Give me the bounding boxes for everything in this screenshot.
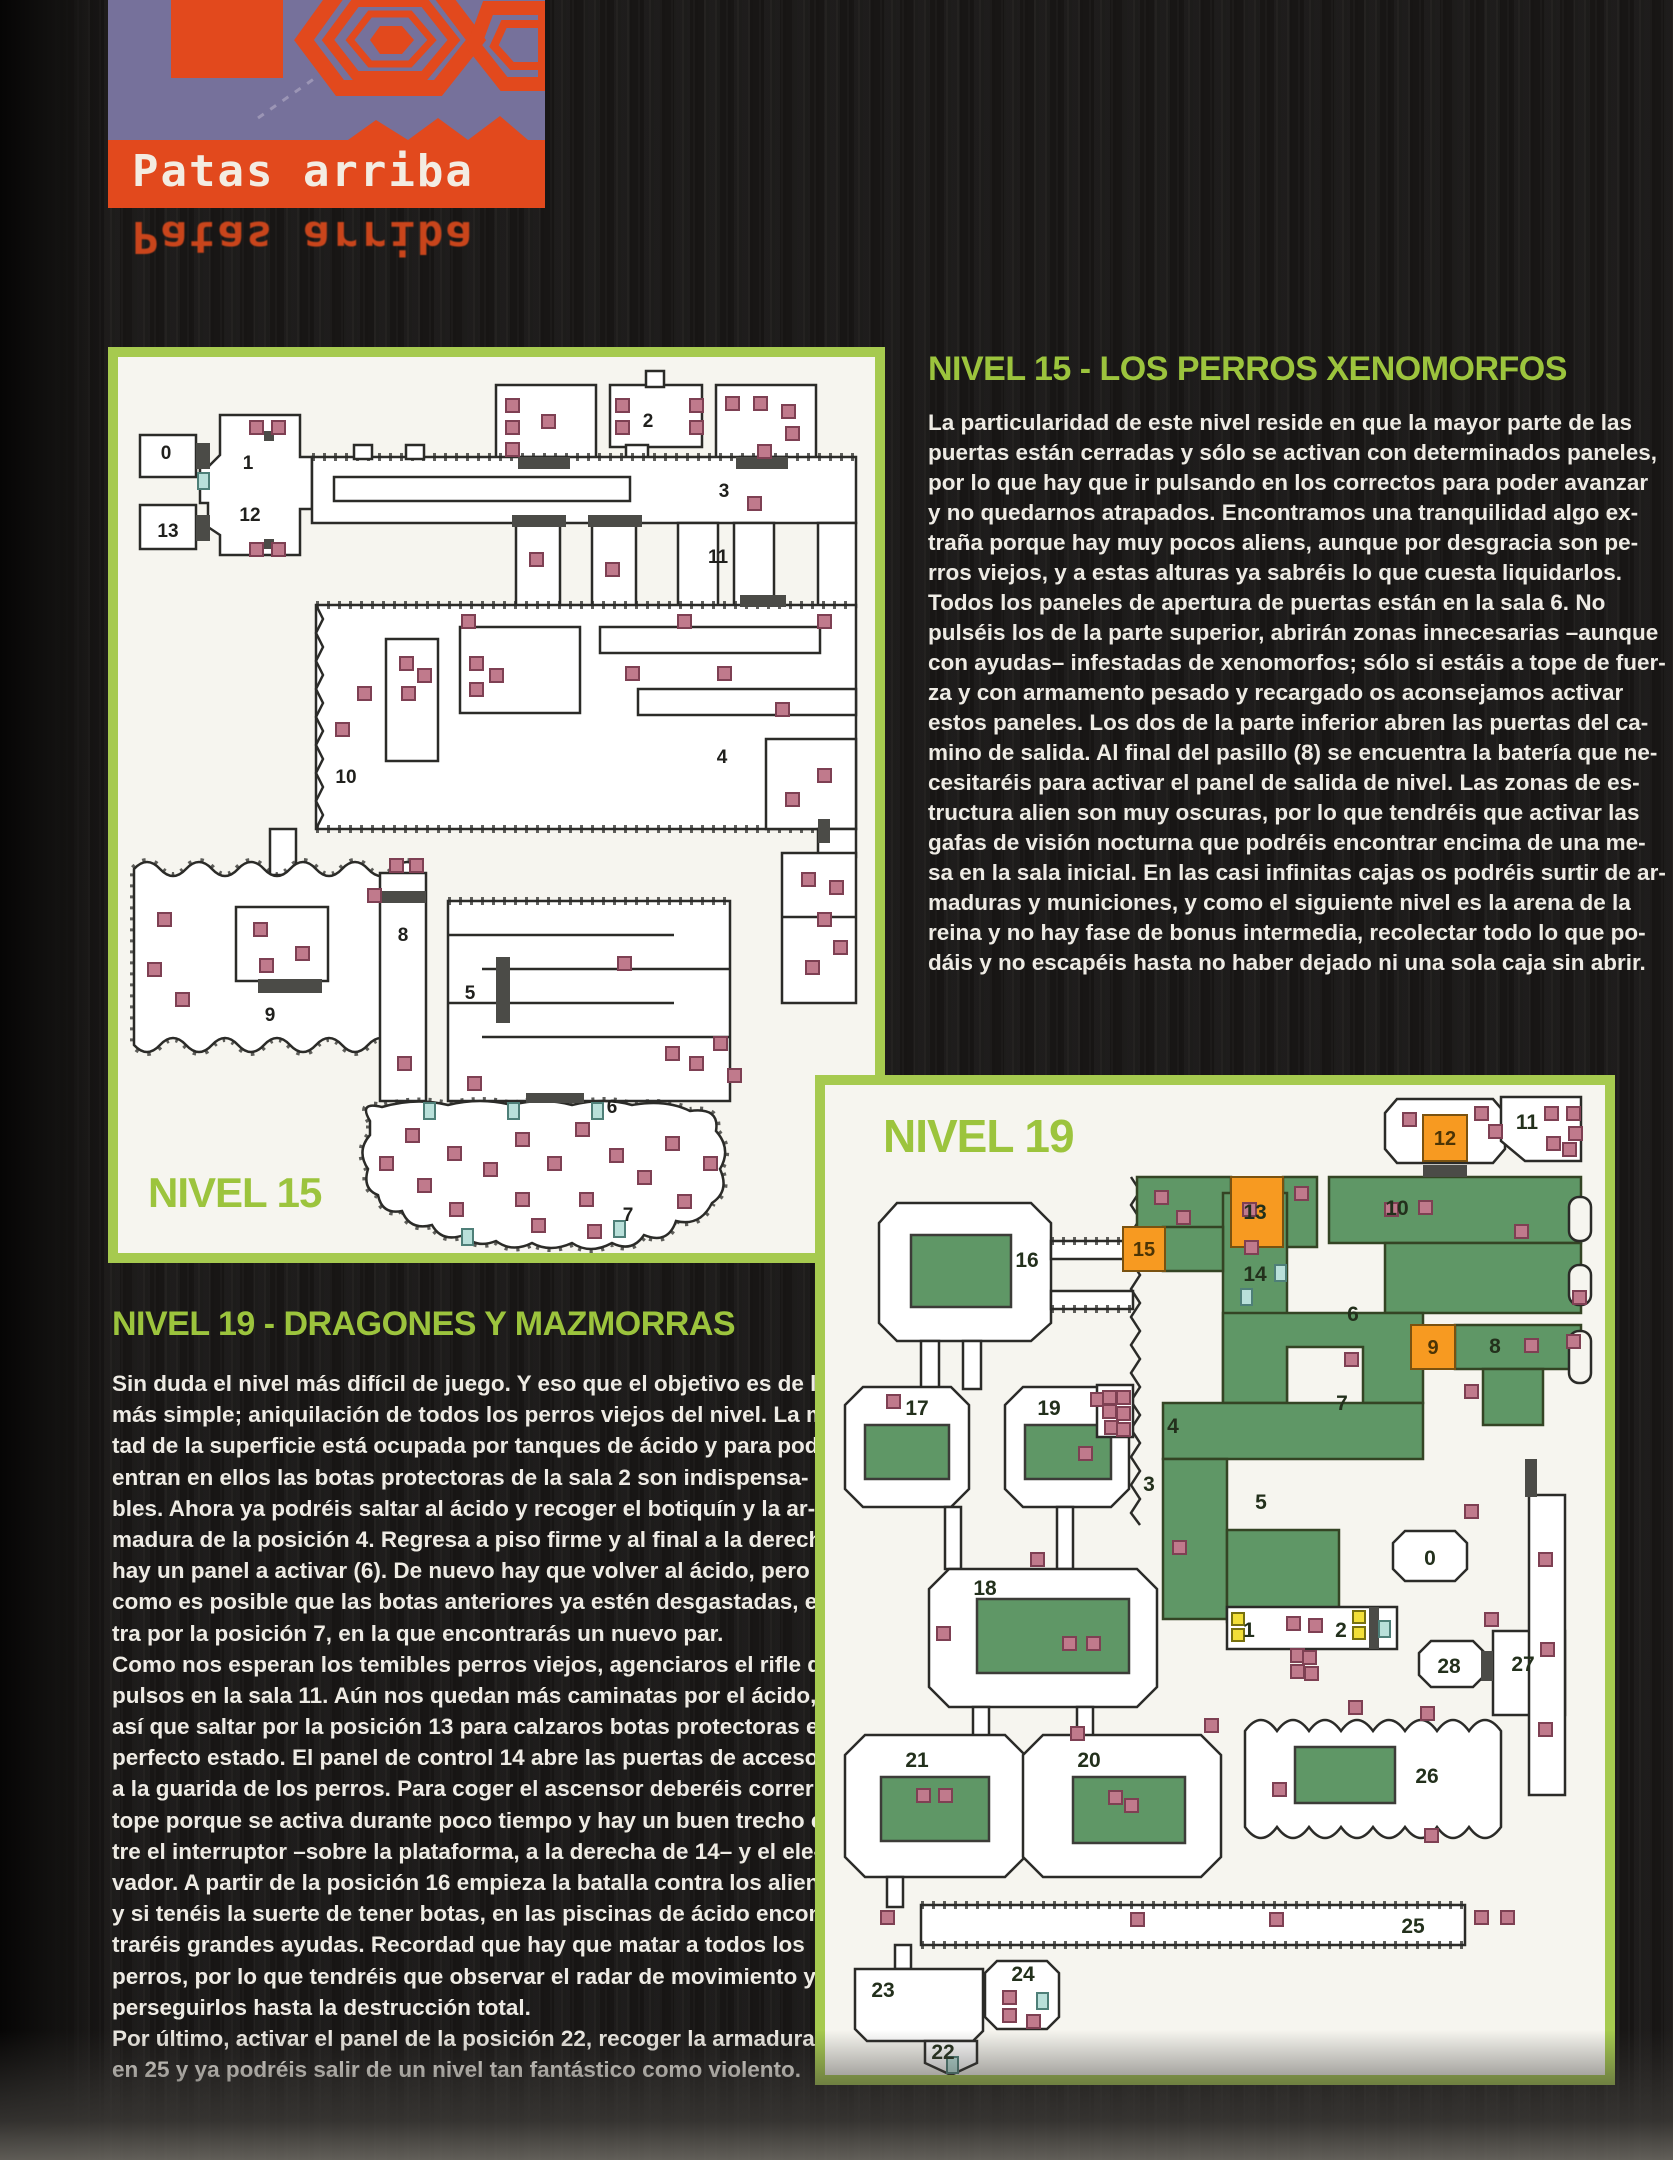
item-crate-icon bbox=[1501, 1911, 1514, 1924]
item-crate-icon bbox=[516, 1133, 529, 1146]
room-number: 16 bbox=[1015, 1249, 1038, 1272]
text-line: sa en la sala inicial. En las casi infin… bbox=[928, 858, 1602, 888]
item-crate-icon bbox=[776, 703, 789, 716]
text-line: tre el interruptor –sobre la plataforma,… bbox=[112, 1836, 802, 1867]
item-crate-icon bbox=[786, 793, 799, 806]
item-crate-icon bbox=[1177, 1211, 1190, 1224]
room-number: 3 bbox=[719, 481, 730, 502]
item-crate-icon bbox=[1270, 1913, 1283, 1926]
item-crate-icon bbox=[678, 615, 691, 628]
item-crate-icon bbox=[462, 615, 475, 628]
item-crate-icon bbox=[1117, 1407, 1130, 1420]
panel-number: 12 bbox=[1434, 1128, 1456, 1150]
text-line: así que saltar por la posición 13 para c… bbox=[112, 1711, 802, 1742]
item-crate-icon bbox=[296, 947, 309, 960]
text-line: mino de salida. Al final del pasillo (8)… bbox=[928, 738, 1602, 768]
item-crate-icon bbox=[1103, 1391, 1116, 1404]
item-crate-icon bbox=[1475, 1107, 1488, 1120]
door-marker bbox=[518, 457, 570, 469]
item-crate-icon bbox=[448, 1147, 461, 1160]
item-crate-icon bbox=[786, 427, 799, 440]
item-crate-icon bbox=[1545, 1107, 1558, 1120]
item-crate-icon bbox=[1421, 1707, 1434, 1720]
room-number: 26 bbox=[1415, 1765, 1438, 1788]
text-line: más simple; aniquilación de todos los pe… bbox=[112, 1399, 802, 1430]
door-marker bbox=[740, 595, 786, 607]
item-crate-icon bbox=[818, 769, 831, 782]
room-number: 8 bbox=[398, 925, 409, 946]
item-crate-icon bbox=[532, 1219, 545, 1232]
text-line: perfecto estado. El panel de control 14 … bbox=[112, 1742, 802, 1773]
item-crate-icon bbox=[1273, 1783, 1286, 1796]
room-number: 2 bbox=[643, 411, 654, 432]
item-crate-icon bbox=[402, 687, 415, 700]
door-marker bbox=[588, 515, 642, 527]
map19-svg: 15129 1617191821202324222501228272610131… bbox=[825, 1085, 1605, 2075]
room-number: 10 bbox=[335, 767, 356, 788]
nivel15-paragraph: La particularidad de este nivel reside e… bbox=[928, 408, 1602, 978]
item-crate-icon bbox=[1567, 1335, 1580, 1348]
item-crate-icon bbox=[1087, 1637, 1100, 1650]
item-crate-icon bbox=[690, 399, 703, 412]
item-crate-icon bbox=[1031, 1553, 1044, 1566]
door-marker bbox=[1423, 1165, 1467, 1177]
room-number: 4 bbox=[1167, 1415, 1179, 1438]
item-crate-icon bbox=[588, 1225, 601, 1238]
text-line: pulséis los de la parte superior, abrirá… bbox=[928, 618, 1602, 648]
item-crate-icon bbox=[754, 397, 767, 410]
item-cyan-icon bbox=[1275, 1265, 1286, 1281]
item-crate-icon bbox=[638, 1171, 651, 1184]
item-crate-icon bbox=[1539, 1553, 1552, 1566]
item-crate-icon bbox=[418, 669, 431, 682]
room-number: 21 bbox=[905, 1749, 929, 1772]
item-crate-icon bbox=[1403, 1113, 1416, 1126]
room-number: 10 bbox=[1385, 1197, 1408, 1220]
room-number: 0 bbox=[1424, 1547, 1436, 1570]
item-crate-icon bbox=[1525, 1339, 1538, 1352]
room-number: 25 bbox=[1401, 1915, 1425, 1938]
item-crate-icon bbox=[818, 913, 831, 926]
room-number: 19 bbox=[1037, 1397, 1060, 1420]
door-marker bbox=[496, 957, 510, 1023]
map-nivel-15: 011213231110489567 NIVEL 15 bbox=[108, 347, 885, 1263]
page-bottom-gradient bbox=[0, 2030, 1673, 2160]
item-cyan-icon bbox=[508, 1103, 519, 1119]
item-crate-icon bbox=[1117, 1391, 1130, 1404]
text-line: traréis grandes ayudas. Recordad que hay… bbox=[112, 1929, 802, 1960]
door-marker bbox=[512, 515, 566, 527]
text-line: tad de la superficie está ocupada por ta… bbox=[112, 1430, 802, 1461]
room-number: 2 bbox=[1335, 1619, 1347, 1642]
item-crate-icon bbox=[380, 1157, 393, 1170]
room-number: 23 bbox=[871, 1979, 894, 2002]
text-line: vador. A partir de la posición 16 empiez… bbox=[112, 1867, 802, 1898]
map19-label: NIVEL 19 bbox=[883, 1109, 1074, 1163]
item-crate-icon bbox=[418, 1179, 431, 1192]
door-marker bbox=[818, 819, 830, 843]
item-crate-icon bbox=[1303, 1651, 1316, 1664]
item-crate-icon bbox=[704, 1157, 717, 1170]
item-crate-icon bbox=[782, 405, 795, 418]
item-crate-icon bbox=[1485, 1613, 1498, 1626]
text-line: y si tenéis la suerte de tener botas, en… bbox=[112, 1898, 802, 1929]
logo-title: Patas arriba bbox=[132, 140, 532, 206]
item-crate-icon bbox=[1475, 1911, 1488, 1924]
text-line: entran en ellos las botas protectoras de… bbox=[112, 1462, 802, 1493]
text-line: por lo que hay que ir pulsando en los co… bbox=[928, 468, 1602, 498]
item-crate-icon bbox=[1117, 1423, 1130, 1436]
item-crate-icon bbox=[358, 687, 371, 700]
item-crate-icon bbox=[728, 1069, 741, 1082]
item-crate-icon bbox=[1109, 1791, 1122, 1804]
item-crate-icon bbox=[1425, 1829, 1438, 1842]
panel-number: 15 bbox=[1133, 1239, 1155, 1261]
item-crate-icon bbox=[618, 957, 631, 970]
item-crate-icon bbox=[1155, 1191, 1168, 1204]
nivel19-heading: NIVEL 19 - DRAGONES Y MAZMORRAS bbox=[112, 1305, 802, 1344]
item-crate-icon bbox=[1295, 1187, 1308, 1200]
room-number: 13 bbox=[1243, 1201, 1266, 1224]
item-crate-icon bbox=[690, 1057, 703, 1070]
item-crate-icon bbox=[939, 1789, 952, 1802]
nivel15-heading: NIVEL 15 - LOS PERROS XENOMORFOS bbox=[928, 350, 1604, 389]
text-line: tope porque se activa durante poco tiemp… bbox=[112, 1805, 802, 1836]
panel-number: 9 bbox=[1427, 1337, 1438, 1359]
item-crate-icon bbox=[881, 1911, 894, 1924]
item-crate-icon bbox=[678, 1195, 691, 1208]
item-crate-icon bbox=[1541, 1643, 1554, 1656]
item-crate-icon bbox=[1291, 1665, 1304, 1678]
item-crate-icon bbox=[830, 881, 843, 894]
item-crate-icon bbox=[726, 397, 739, 410]
item-crate-icon bbox=[530, 553, 543, 566]
text-line: perros, por lo que tendréis que observar… bbox=[112, 1961, 802, 1992]
item-crate-icon bbox=[468, 1077, 481, 1090]
text-line: maduras y municiones, y como el siguient… bbox=[928, 888, 1602, 918]
text-line: con ayudas– infestadas de xenomorfos; só… bbox=[928, 648, 1602, 678]
item-crate-icon bbox=[254, 923, 267, 936]
item-crate-icon bbox=[576, 1123, 589, 1136]
item-crate-icon bbox=[506, 443, 519, 456]
item-yellow-icon bbox=[1353, 1627, 1365, 1639]
item-crate-icon bbox=[1465, 1385, 1478, 1398]
item-crate-icon bbox=[1103, 1405, 1116, 1418]
item-crate-icon bbox=[506, 399, 519, 412]
room-number: 4 bbox=[717, 747, 728, 768]
room-number: 20 bbox=[1077, 1749, 1100, 1772]
item-crate-icon bbox=[758, 445, 771, 458]
item-crate-icon bbox=[516, 1193, 529, 1206]
item-crate-icon bbox=[400, 657, 413, 670]
text-line: estos paneles. Los dos de la parte infer… bbox=[928, 708, 1602, 738]
item-crate-icon bbox=[666, 1137, 679, 1150]
item-crate-icon bbox=[1173, 1541, 1186, 1554]
item-crate-icon bbox=[250, 421, 263, 434]
text-line: Como nos esperan los temibles perros vie… bbox=[112, 1649, 802, 1680]
item-cyan-icon bbox=[592, 1103, 603, 1119]
door-marker bbox=[196, 515, 210, 541]
door-marker bbox=[382, 891, 426, 903]
item-crate-icon bbox=[718, 667, 731, 680]
item-crate-icon bbox=[158, 913, 171, 926]
item-crate-icon bbox=[490, 669, 503, 682]
map15-label: NIVEL 15 bbox=[148, 1169, 321, 1217]
room-number: 11 bbox=[708, 547, 729, 568]
room-number: 24 bbox=[1011, 1963, 1035, 1986]
text-line: tructura alien son muy oscuras, por lo q… bbox=[928, 798, 1602, 828]
room-number: 7 bbox=[1336, 1392, 1348, 1415]
item-cyan-icon bbox=[462, 1229, 473, 1245]
text-line: como es posible que las botas anteriores… bbox=[112, 1586, 802, 1617]
patas-arriba-logo: Patas arriba bbox=[108, 0, 545, 208]
room-number: 8 bbox=[1489, 1335, 1501, 1358]
item-cyan-icon bbox=[1037, 1993, 1048, 2009]
item-crate-icon bbox=[1125, 1799, 1138, 1812]
item-crate-icon bbox=[1567, 1107, 1580, 1120]
item-crate-icon bbox=[610, 1149, 623, 1162]
item-crate-icon bbox=[368, 889, 381, 902]
item-crate-icon bbox=[690, 421, 703, 434]
item-crate-icon bbox=[542, 415, 555, 428]
text-line: Sin duda el nivel más difícil de juego. … bbox=[112, 1368, 802, 1399]
room-number: 27 bbox=[1511, 1653, 1534, 1676]
item-crate-icon bbox=[714, 1037, 727, 1050]
item-crate-icon bbox=[250, 543, 263, 556]
item-crate-icon bbox=[176, 993, 189, 1006]
text-line: rros viejos, y a estas alturas ya sabréi… bbox=[928, 558, 1602, 588]
item-crate-icon bbox=[1063, 1637, 1076, 1650]
text-line: a la guarida de los perros. Para coger e… bbox=[112, 1773, 802, 1804]
item-crate-icon bbox=[1205, 1719, 1218, 1732]
text-line: madura de la posición 4. Regresa a piso … bbox=[112, 1524, 802, 1555]
room-number: 14 bbox=[1243, 1263, 1267, 1286]
item-crate-icon bbox=[406, 1129, 419, 1142]
item-crate-icon bbox=[616, 399, 629, 412]
door-marker bbox=[1369, 1607, 1379, 1649]
item-crate-icon bbox=[1027, 2015, 1040, 2028]
room-number: 18 bbox=[973, 1577, 997, 1600]
item-crate-icon bbox=[616, 421, 629, 434]
door-marker bbox=[258, 979, 322, 993]
item-crate-icon bbox=[1349, 1701, 1362, 1714]
item-crate-icon bbox=[666, 1047, 679, 1060]
item-crate-icon bbox=[834, 941, 847, 954]
item-crate-icon bbox=[1079, 1447, 1092, 1460]
item-crate-icon bbox=[1563, 1143, 1576, 1156]
item-cyan-icon bbox=[198, 473, 209, 489]
logo-reflection: Patas arriba bbox=[132, 210, 532, 262]
text-line: za y con armamento pesado y recargado os… bbox=[928, 678, 1602, 708]
magazine-page: Patas arriba Patas arriba bbox=[0, 0, 1673, 2160]
item-crate-icon bbox=[626, 667, 639, 680]
room-number: 6 bbox=[607, 1097, 618, 1118]
room-number: 1 bbox=[243, 453, 254, 474]
item-crate-icon bbox=[1573, 1291, 1586, 1304]
door-marker bbox=[1481, 1651, 1493, 1681]
room-number: 9 bbox=[265, 1005, 276, 1026]
item-crate-icon bbox=[580, 1193, 593, 1206]
item-crate-icon bbox=[148, 963, 161, 976]
door-marker bbox=[526, 1093, 584, 1103]
item-cyan-icon bbox=[1379, 1621, 1390, 1637]
item-crate-icon bbox=[802, 873, 815, 886]
map-nivel-19: 15129 1617191821202324222501228272610131… bbox=[815, 1075, 1615, 2085]
item-crate-icon bbox=[1287, 1617, 1300, 1630]
nivel19-paragraph: Sin duda el nivel más difícil de juego. … bbox=[112, 1368, 802, 2085]
room-number: 17 bbox=[905, 1397, 928, 1420]
item-crate-icon bbox=[470, 683, 483, 696]
item-crate-icon bbox=[336, 723, 349, 736]
item-cyan-icon bbox=[424, 1103, 435, 1119]
text-line: bles. Ahora ya podréis saltar al ácido y… bbox=[112, 1493, 802, 1524]
item-cyan-icon bbox=[1241, 1289, 1252, 1305]
room-number: 13 bbox=[157, 521, 178, 542]
item-crate-icon bbox=[1309, 1619, 1322, 1632]
room-number: 3 bbox=[1143, 1473, 1155, 1496]
door-marker bbox=[1525, 1459, 1537, 1497]
item-crate-icon bbox=[1547, 1137, 1560, 1150]
text-line: La particularidad de este nivel reside e… bbox=[928, 408, 1602, 438]
text-line: y no quedarnos atrapados. Encontramos un… bbox=[928, 498, 1602, 528]
item-crate-icon bbox=[818, 615, 831, 628]
item-crate-icon bbox=[937, 1627, 950, 1640]
item-crate-icon bbox=[1515, 1225, 1528, 1238]
item-crate-icon bbox=[1245, 1241, 1258, 1254]
item-crate-icon bbox=[1569, 1127, 1582, 1140]
item-crate-icon bbox=[1489, 1125, 1502, 1138]
room-number: 1 bbox=[1243, 1619, 1255, 1642]
text-line: puertas están cerradas y sólo se activan… bbox=[928, 438, 1602, 468]
room-number: 5 bbox=[1255, 1491, 1267, 1514]
item-crate-icon bbox=[398, 1057, 411, 1070]
text-line: perseguirlos hasta la destrucción total. bbox=[112, 1992, 802, 2023]
item-crate-icon bbox=[1131, 1913, 1144, 1926]
item-crate-icon bbox=[272, 421, 285, 434]
room-number: 7 bbox=[623, 1205, 634, 1226]
item-crate-icon bbox=[272, 543, 285, 556]
room-number: 6 bbox=[1347, 1303, 1359, 1326]
text-line: pulsos en la sala 11. Aún nos quedan más… bbox=[112, 1680, 802, 1711]
room-number: 11 bbox=[1516, 1111, 1539, 1134]
item-crate-icon bbox=[260, 959, 273, 972]
item-crate-icon bbox=[1345, 1353, 1358, 1366]
room-number: 0 bbox=[161, 443, 172, 464]
item-crate-icon bbox=[1539, 1723, 1552, 1736]
item-crate-icon bbox=[1465, 1505, 1478, 1518]
text-line: Todos los paneles de apertura de puertas… bbox=[928, 588, 1602, 618]
text-line: traña porque hay muy pocos aliens, aunqu… bbox=[928, 528, 1602, 558]
item-crate-icon bbox=[390, 859, 403, 872]
room-number: 12 bbox=[239, 505, 260, 526]
item-crate-icon bbox=[748, 497, 761, 510]
door-marker bbox=[196, 443, 210, 469]
text-line: reina y no hay fase de bonus intermedia,… bbox=[928, 918, 1602, 948]
item-yellow-icon bbox=[1353, 1611, 1365, 1623]
item-crate-icon bbox=[1419, 1201, 1432, 1214]
map19-walls bbox=[845, 1097, 1591, 2075]
room-number: 28 bbox=[1437, 1655, 1461, 1678]
item-crate-icon bbox=[887, 1395, 900, 1408]
text-line: tra por la posición 7, en la que encontr… bbox=[112, 1618, 802, 1649]
item-crate-icon bbox=[410, 859, 423, 872]
text-line: cesitaréis para activar el panel de sali… bbox=[928, 768, 1602, 798]
item-crate-icon bbox=[506, 421, 519, 434]
item-crate-icon bbox=[917, 1789, 930, 1802]
text-line: dáis y no escapéis hasta no haber dejado… bbox=[928, 948, 1602, 978]
item-crate-icon bbox=[1305, 1667, 1318, 1680]
item-crate-icon bbox=[484, 1163, 497, 1176]
text-line: hay un panel a activar (6). De nuevo hay… bbox=[112, 1555, 802, 1586]
room-number: 5 bbox=[465, 983, 476, 1004]
item-crate-icon bbox=[806, 961, 819, 974]
binding-shadow bbox=[0, 0, 110, 2160]
item-crate-icon bbox=[1003, 2009, 1016, 2022]
item-crate-icon bbox=[548, 1157, 561, 1170]
text-line: gafas de visión nocturna que podréis enc… bbox=[928, 828, 1602, 858]
item-crate-icon bbox=[1003, 1991, 1016, 2004]
item-crate-icon bbox=[1071, 1727, 1084, 1740]
item-crate-icon bbox=[450, 1203, 463, 1216]
map15-svg: 011213231110489567 bbox=[118, 357, 875, 1253]
item-crate-icon bbox=[470, 657, 483, 670]
item-crate-icon bbox=[606, 563, 619, 576]
